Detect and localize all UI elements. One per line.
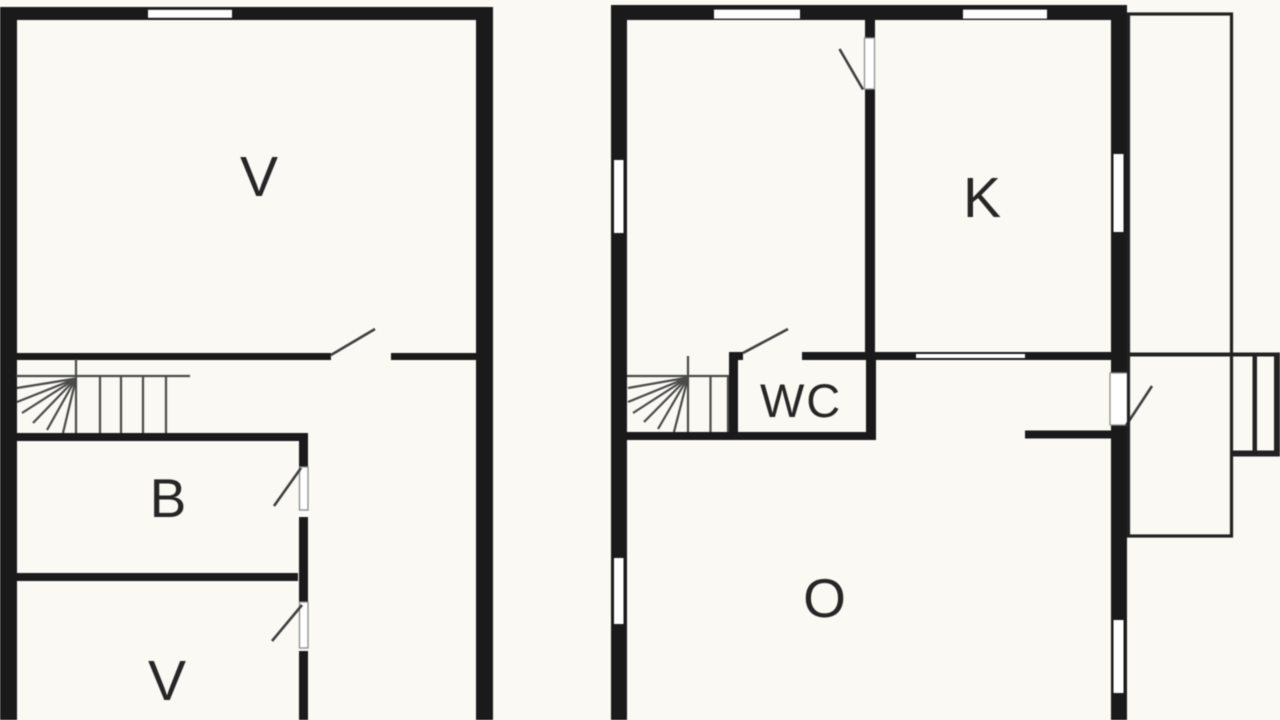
svg-text:WC: WC — [760, 374, 842, 427]
svg-text:K: K — [963, 166, 1001, 230]
svg-text:B: B — [150, 467, 187, 529]
svg-text:V: V — [240, 145, 278, 209]
svg-text:V: V — [148, 649, 186, 713]
svg-text:O: O — [803, 567, 846, 629]
